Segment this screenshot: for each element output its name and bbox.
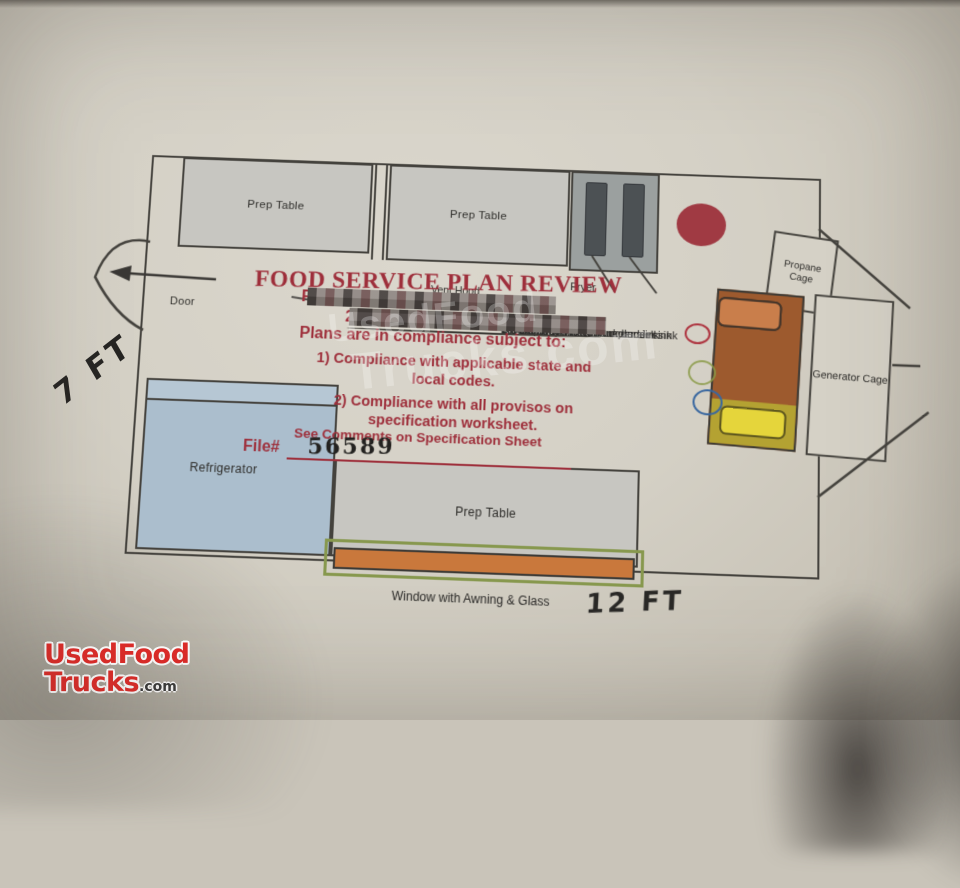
hot-holding-unit [707,288,805,452]
logo-line1: UsedFood [44,641,189,669]
serving-window-counter [333,547,635,580]
prep-table-top-left: Prep Table [178,157,374,254]
propane-cage-label: Propane Cage [770,257,834,290]
prep-table-label: Prep Table [450,209,507,223]
prep-table-label: Prep Table [247,198,304,212]
prep-table-top-middle: Prep Table [386,164,571,266]
hot-holding-pan [717,296,782,331]
door-label: Door [170,295,196,308]
blue-circle-marker [692,389,723,416]
compliance-condition-1: 1) Compliance with applicable state and … [307,349,600,396]
logo-com-suffix: .com [139,679,177,695]
green-circle-marker [688,360,716,386]
generator-cage-label: Generator Cage [812,368,888,387]
fryer [569,171,660,274]
sink-circle-symbol [676,203,726,247]
generator-cage: Generator Cage [806,294,895,462]
refrigerator-label: Refrigerator [142,458,304,478]
file-number-label: File# [242,438,280,458]
usedfoodtrucks-logo: UsedFood Trucks.com [44,641,189,701]
prep-table-label: Prep Table [334,500,637,525]
fryer-basket-slot [622,183,645,257]
hot-holding-yellow-pan [719,405,787,440]
photo-top-edge-shadow [0,0,960,8]
trailer-floor-plan: Prep Table Prep Table Fryer Vent Hood FO… [125,155,821,580]
logo-line2: Trucks.com [44,669,189,701]
refrigerator: Refrigerator [135,378,339,556]
length-dimension-handwritten: 12 FT [585,586,685,621]
red-circle-marker [684,323,710,345]
file-number-handwritten: 56589 [307,433,395,459]
fryer-basket-slot [584,182,608,256]
finger-shadow-right [868,548,960,888]
logo-trucks-text: Trucks [44,667,139,698]
